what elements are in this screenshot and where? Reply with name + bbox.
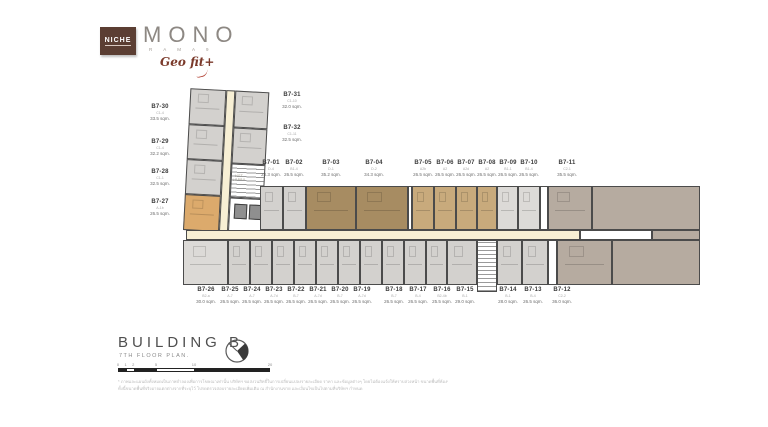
scale-5: 5	[155, 362, 157, 367]
unit-area: 32.2 sqm.	[140, 151, 180, 157]
lift-icon	[234, 204, 248, 220]
unit-B7-26	[183, 240, 228, 285]
unit-B7-09	[497, 186, 518, 230]
unit-B7-03	[306, 186, 356, 230]
unit-number: B7-11	[547, 160, 587, 167]
unit-number: B7-02	[274, 160, 314, 167]
unit-area: 32.5 sqm.	[272, 137, 312, 143]
floor-subtitle: 7TH FLOOR PLAN.	[119, 353, 190, 359]
unit-area: 26.5 sqm.	[274, 172, 314, 178]
unit-label-B7-28: B7-28C1-132.5 sqm.	[140, 169, 180, 187]
scale-1: 1	[124, 362, 126, 367]
unit-number: B7-15	[445, 287, 485, 294]
unit-area: 36.0 sqm.	[542, 299, 582, 305]
unit-B7-06	[434, 186, 456, 230]
unit-label-B7-02: B7-02B1-426.5 sqm.	[274, 160, 314, 178]
unit-area: 32.5 sqm.	[140, 181, 180, 187]
unit-B7-30	[189, 88, 227, 126]
core-c	[540, 186, 548, 230]
unit-B7-01	[260, 186, 283, 230]
unit-B7-20	[338, 240, 360, 285]
unit-B7-29	[187, 124, 225, 161]
unit-B7-11	[548, 186, 592, 230]
unit-area: 32.0 sqm.	[272, 104, 312, 110]
unit-label-B7-30: B7-30C1-433.5 sqm.	[140, 104, 180, 122]
unit-area: 33.5 sqm.	[140, 116, 180, 122]
core-d	[548, 240, 557, 285]
scale-bar-segments	[118, 368, 270, 372]
unit-number: B7-27	[140, 199, 180, 206]
unit-number: B7-32	[272, 125, 312, 132]
unit-number: B7-28	[140, 169, 180, 176]
unit-B7-31	[233, 91, 269, 130]
lift-core	[228, 197, 264, 234]
unit-area: 35.5 sqm.	[547, 172, 587, 178]
unit-B7-04	[356, 186, 408, 230]
unit-B7-16	[426, 240, 447, 285]
unit-B7-13	[522, 240, 548, 285]
unit-label-B7-11: B7-11C2-135.5 sqm.	[547, 160, 587, 178]
unit-B7-25	[228, 240, 250, 285]
unit-B7-07	[456, 186, 477, 230]
unit-label-B7-03: B7-03D-135.2 sqm.	[311, 160, 351, 178]
unit-B7-05	[412, 186, 434, 230]
unit-number: B7-29	[140, 139, 180, 146]
unit-B7-15	[447, 240, 477, 285]
unit-area: 35.2 sqm.	[311, 172, 351, 178]
unit-B7-14	[497, 240, 522, 285]
end-top	[592, 186, 700, 230]
unit-B7-18	[382, 240, 404, 285]
scale-0: 0	[117, 362, 119, 367]
unit-label-B7-27: B7-27A-1b26.5 sqm.	[140, 199, 180, 217]
unit-number: B7-10	[509, 160, 549, 167]
unit-B7-22	[294, 240, 316, 285]
unit-number: B7-30	[140, 104, 180, 111]
unit-number: B7-03	[311, 160, 351, 167]
floor-plan: LIFT LOBBY B7-30C1-433.5 sqm.B7-29C1-432…	[0, 0, 768, 330]
scale-2: 2	[132, 362, 134, 367]
unit-area: 29.0 sqm.	[445, 299, 485, 305]
unit-label-B7-12: B7-12C2-236.0 sqm.	[542, 287, 582, 305]
end-bottom	[612, 240, 700, 285]
disclaimer-line-1: * ภาพและแผนผังทั้งหมดเป็นภาพจำลองเพื่อกา…	[118, 378, 448, 385]
unit-number: B7-04	[354, 160, 394, 167]
unit-B7-19	[360, 240, 382, 285]
unit-B7-17	[404, 240, 426, 285]
unit-B7-28	[185, 159, 223, 196]
corridor-end	[580, 230, 652, 240]
corridor	[186, 230, 580, 240]
unit-label-B7-29: B7-29C1-432.2 sqm.	[140, 139, 180, 157]
disclaimer-line-2: ทั้งนี้ขนาดพื้นที่จริงอาจแตกต่างจากที่ระ…	[118, 385, 448, 392]
unit-area: 26.5 sqm.	[140, 211, 180, 217]
floorplan-page: NICHE MONO R A M A 9 Geo fit+ LIFT LOBBY…	[0, 0, 768, 427]
corridor-cap	[652, 230, 700, 240]
scale-20: 20	[268, 362, 272, 367]
unit-label-B7-15: B7-15B-129.0 sqm.	[445, 287, 485, 305]
unit-label-B7-04: B7-04D-234.3 sqm.	[354, 160, 394, 178]
unit-B7-27	[183, 194, 221, 232]
unit-area: 26.5 sqm.	[509, 172, 549, 178]
unit-B7-02	[283, 186, 306, 230]
unit-B7-21	[316, 240, 338, 285]
unit-label-B7-32: B7-32C1-1132.5 sqm.	[272, 125, 312, 143]
unit-label-B7-10: B7-10B1-426.5 sqm.	[509, 160, 549, 178]
unit-B7-23	[272, 240, 294, 285]
scale-10: 10	[192, 362, 196, 367]
unit-number: B7-31	[272, 92, 312, 99]
unit-B7-10	[518, 186, 540, 230]
compass-icon	[224, 338, 250, 364]
stair-b	[477, 240, 497, 292]
unit-B7-08	[477, 186, 497, 230]
unit-label-B7-31: B7-31C1-1032.0 sqm.	[272, 92, 312, 110]
unit-B7-12	[557, 240, 612, 285]
unit-B7-24	[250, 240, 272, 285]
unit-area: 34.3 sqm.	[354, 172, 394, 178]
unit-number: B7-12	[542, 287, 582, 294]
